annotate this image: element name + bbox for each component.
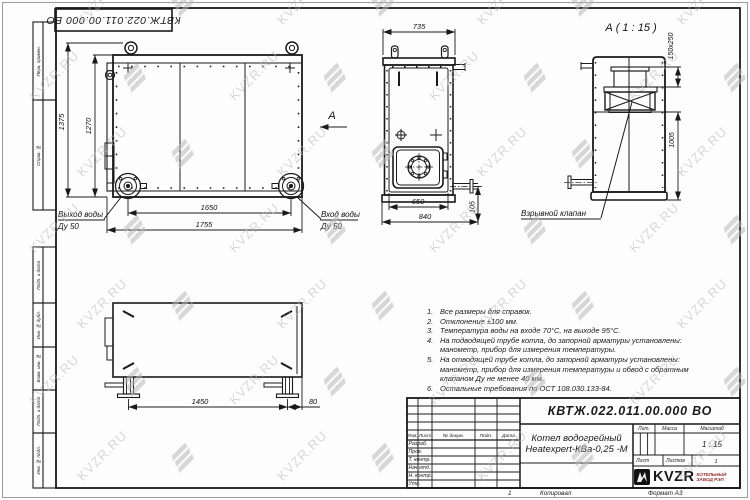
frame-side-label-text: Подп. и дата (36, 397, 41, 426)
kvzr-logo-icon (634, 469, 650, 485)
front-view-burner-flange (405, 153, 433, 181)
detail-view: А ( 1 : 15 ) (521, 22, 681, 219)
frame-side-label: Подп. и дата (33, 390, 43, 433)
note-text-line: Отклонение ±100 мм. (440, 317, 518, 327)
note-text-line: Температура воды на входе 70°С, на выход… (440, 326, 620, 336)
inlet-label-line1: Вход воды (321, 210, 360, 219)
kvzr-logo-subtitle: КОТЕЛЬНЫЙ ЗАВОД РЭП (696, 472, 726, 482)
bottom-view: 1450 80 (105, 303, 320, 410)
outlet-label-line2: Ду 50 (57, 222, 79, 231)
sheets-value: 1 (692, 458, 740, 466)
tb-sign-row: Пров. (409, 449, 435, 457)
side-view: 1375 1270 1650 1755 Выход воды Ду 50 (57, 42, 360, 233)
side-view-bolt-rows (117, 67, 299, 189)
bottom-view-bracket (105, 318, 113, 360)
note-text: Отклонение ±100 мм. (440, 317, 518, 327)
front-view-slots (399, 72, 437, 87)
bottom-view-outline (113, 303, 302, 377)
side-view-lifting-lugs (106, 42, 299, 80)
scale-label: Масштаб (684, 425, 740, 433)
detail-bottom-pipe (564, 176, 597, 189)
notes-list: 1.Все размеры для справок.2.Отклонение ±… (427, 307, 727, 393)
inlet-callout: Вход воды Ду 50 (296, 196, 360, 231)
bottom-view-left-leg (105, 377, 140, 398)
frame-side-label: Взам. инв. № (33, 347, 43, 390)
tb-sign-row: Н. контр. (409, 473, 435, 481)
bottom-view-right-leg (264, 377, 299, 398)
note-item: 5.На отводящей трубе котла, до запорной … (427, 355, 727, 384)
tb-sign-row: Утв. (409, 481, 435, 489)
note-number: 6. (427, 384, 440, 394)
note-number: 5. (427, 355, 440, 384)
copy-number: 1 (508, 490, 512, 497)
frame-side-label: Инв. № подл. (33, 433, 43, 488)
frame-side-label: Перв. примен. (33, 22, 43, 100)
dim-text-1375: 1375 (57, 113, 66, 131)
note-text-line: На отводящей трубе котла, до запорной ар… (440, 355, 689, 365)
lit-label: Лит. (633, 425, 655, 433)
frame-side-label-text: Справ. № (36, 145, 41, 166)
tb-header-col: Подп. (475, 433, 497, 441)
side-view-outline (107, 55, 302, 197)
product-name-line1: Котел водогрейный (531, 433, 621, 445)
side-view-corner-marks (123, 63, 295, 73)
dim-side-width-inner: 1650 (128, 198, 291, 216)
section-arrow-label: А (327, 110, 335, 122)
note-text: Остальные требования по ОСТ 108.030.133-… (440, 384, 612, 394)
tb-header-col: № докум. (432, 433, 475, 441)
drawing-sheet: 1375 1270 1650 1755 Выход воды Ду 50 (0, 0, 750, 500)
dim-text-150x250: 150х250 (668, 32, 675, 59)
detail-view-title: А ( 1 : 15 ) (604, 22, 657, 34)
frame-side-label: Справ. № (33, 100, 43, 210)
tb-sign-row: Т. контр. (409, 457, 435, 465)
front-view-top-pipe (453, 63, 465, 71)
frame-side-label-text: Инв. № дубл. (36, 311, 41, 339)
frame-side-label: Подп. и дата (33, 247, 43, 303)
dim-text-1270: 1270 (84, 117, 93, 135)
note-text-line: манометр, прибор для измерения температу… (440, 365, 689, 375)
note-text: Температура воды на входе 70°С, на выход… (440, 326, 620, 336)
note-number: 1. (427, 307, 440, 317)
mass-label: Масса (655, 425, 684, 433)
side-view-inlet-flange (272, 174, 304, 199)
frame-side-label-text: Подп. и дата (36, 261, 41, 290)
bottom-view-corner-marks (123, 311, 292, 369)
dim-text-1650: 1650 (201, 203, 219, 212)
dim-text-105: 105 (470, 201, 477, 213)
front-view-crosshairs (395, 129, 442, 141)
note-text-line: Остальные требования по ОСТ 108.030.133-… (440, 384, 612, 394)
kvzr-logo-subtitle-line2: ЗАВОД РЭП (696, 477, 726, 482)
frame-side-label-text: Инв. № подл. (36, 446, 41, 475)
dim-bottom-offset: 80 (288, 397, 321, 407)
tb-sign-row: Нач.отд. (409, 465, 435, 473)
valve-callout: Взрывной клапан (521, 102, 632, 219)
front-view: 735 650 840 105 (382, 22, 482, 225)
frame-side-label-text: Взам. инв. № (36, 354, 41, 382)
scale-value: 1 : 15 (684, 436, 740, 453)
sheets-label: Листов (666, 458, 690, 466)
format-label: Формат А3 (648, 490, 682, 497)
note-text: На отводящей трубе котла, до запорной ар… (440, 355, 689, 384)
product-name-line2: Heatexpert-КВа-0,25 -М (525, 444, 627, 456)
dim-text-840: 840 (419, 212, 432, 221)
product-name: Котел водогрейный Heatexpert-КВа-0,25 -М (521, 427, 632, 461)
detail-top-pipe (581, 62, 593, 70)
kvzr-logo-text: KVZR (653, 469, 694, 485)
explosion-valve (604, 67, 657, 113)
tb-header-col: Изм. (407, 433, 418, 441)
tb-sign-row: Разраб. (409, 441, 435, 449)
note-number: 2. (427, 317, 440, 327)
doc-number: КВТЖ.022.011.00.000 ВО (520, 399, 740, 423)
top-stamp: КВТЖ.022.011.00.000 ВО (55, 9, 172, 31)
inlet-label-line2: Ду 50 (320, 222, 342, 231)
note-item: 3.Температура воды на входе 70°С, на вых… (427, 326, 727, 336)
outlet-label-line1: Выход воды (58, 210, 103, 219)
note-item: 1.Все размеры для справок. (427, 307, 727, 317)
copied-label: Копировал (540, 490, 571, 497)
note-item: 6.Остальные требования по ОСТ 108.030.13… (427, 384, 727, 394)
company-logo: KVZR КОТЕЛЬНЫЙ ЗАВОД РЭП (634, 467, 739, 487)
front-view-lugs (392, 46, 449, 58)
outlet-callout: Выход воды Ду 50 (57, 196, 122, 231)
detail-view-outline (591, 57, 667, 200)
note-text-line: На подводящей трубе котла, до запорной а… (440, 336, 682, 346)
dim-text-1005: 1005 (669, 132, 676, 148)
note-number: 3. (427, 326, 440, 336)
note-item: 4.На подводящей трубе котла, до запорной… (427, 336, 727, 355)
note-text: Все размеры для справок. (440, 307, 532, 317)
sheet-label: Лист (636, 458, 656, 466)
dim-text-80: 80 (309, 397, 318, 406)
note-item: 2.Отклонение ±100 мм. (427, 317, 727, 327)
note-text-line: манометр, прибор для измерения температу… (440, 345, 682, 355)
valve-callout-label: Взрывной клапан (521, 209, 587, 218)
frame-side-label: Инв. № дубл. (33, 303, 43, 347)
dim-detail-height: 1005 (665, 112, 681, 200)
note-number: 4. (427, 336, 440, 355)
note-text: На подводящей трубе котла, до запорной а… (440, 336, 682, 355)
front-view-door (393, 147, 447, 188)
frame-side-label-text: Перв. примен. (36, 46, 41, 77)
dim-front-top: 735 (383, 22, 455, 55)
section-view-arrow: А (320, 110, 347, 127)
side-view-outlet-flange (116, 174, 147, 199)
tb-header-col: Дата (497, 433, 520, 441)
dim-front-bottom-outer: 840 (382, 191, 478, 225)
tb-header-col: Лист (418, 433, 432, 441)
dim-text-1755: 1755 (196, 220, 214, 229)
top-stamp-text: КВТЖ.022.011.00.000 ВО (46, 14, 181, 26)
note-text-line: клапаном Ду не менее 40 мм. (440, 374, 689, 384)
note-text-line: Все размеры для справок. (440, 307, 532, 317)
dim-text-650: 650 (412, 197, 425, 206)
dim-text-735: 735 (413, 22, 426, 31)
dim-text-1450: 1450 (192, 397, 210, 406)
dim-front-pipe-offset: 105 (470, 187, 482, 223)
